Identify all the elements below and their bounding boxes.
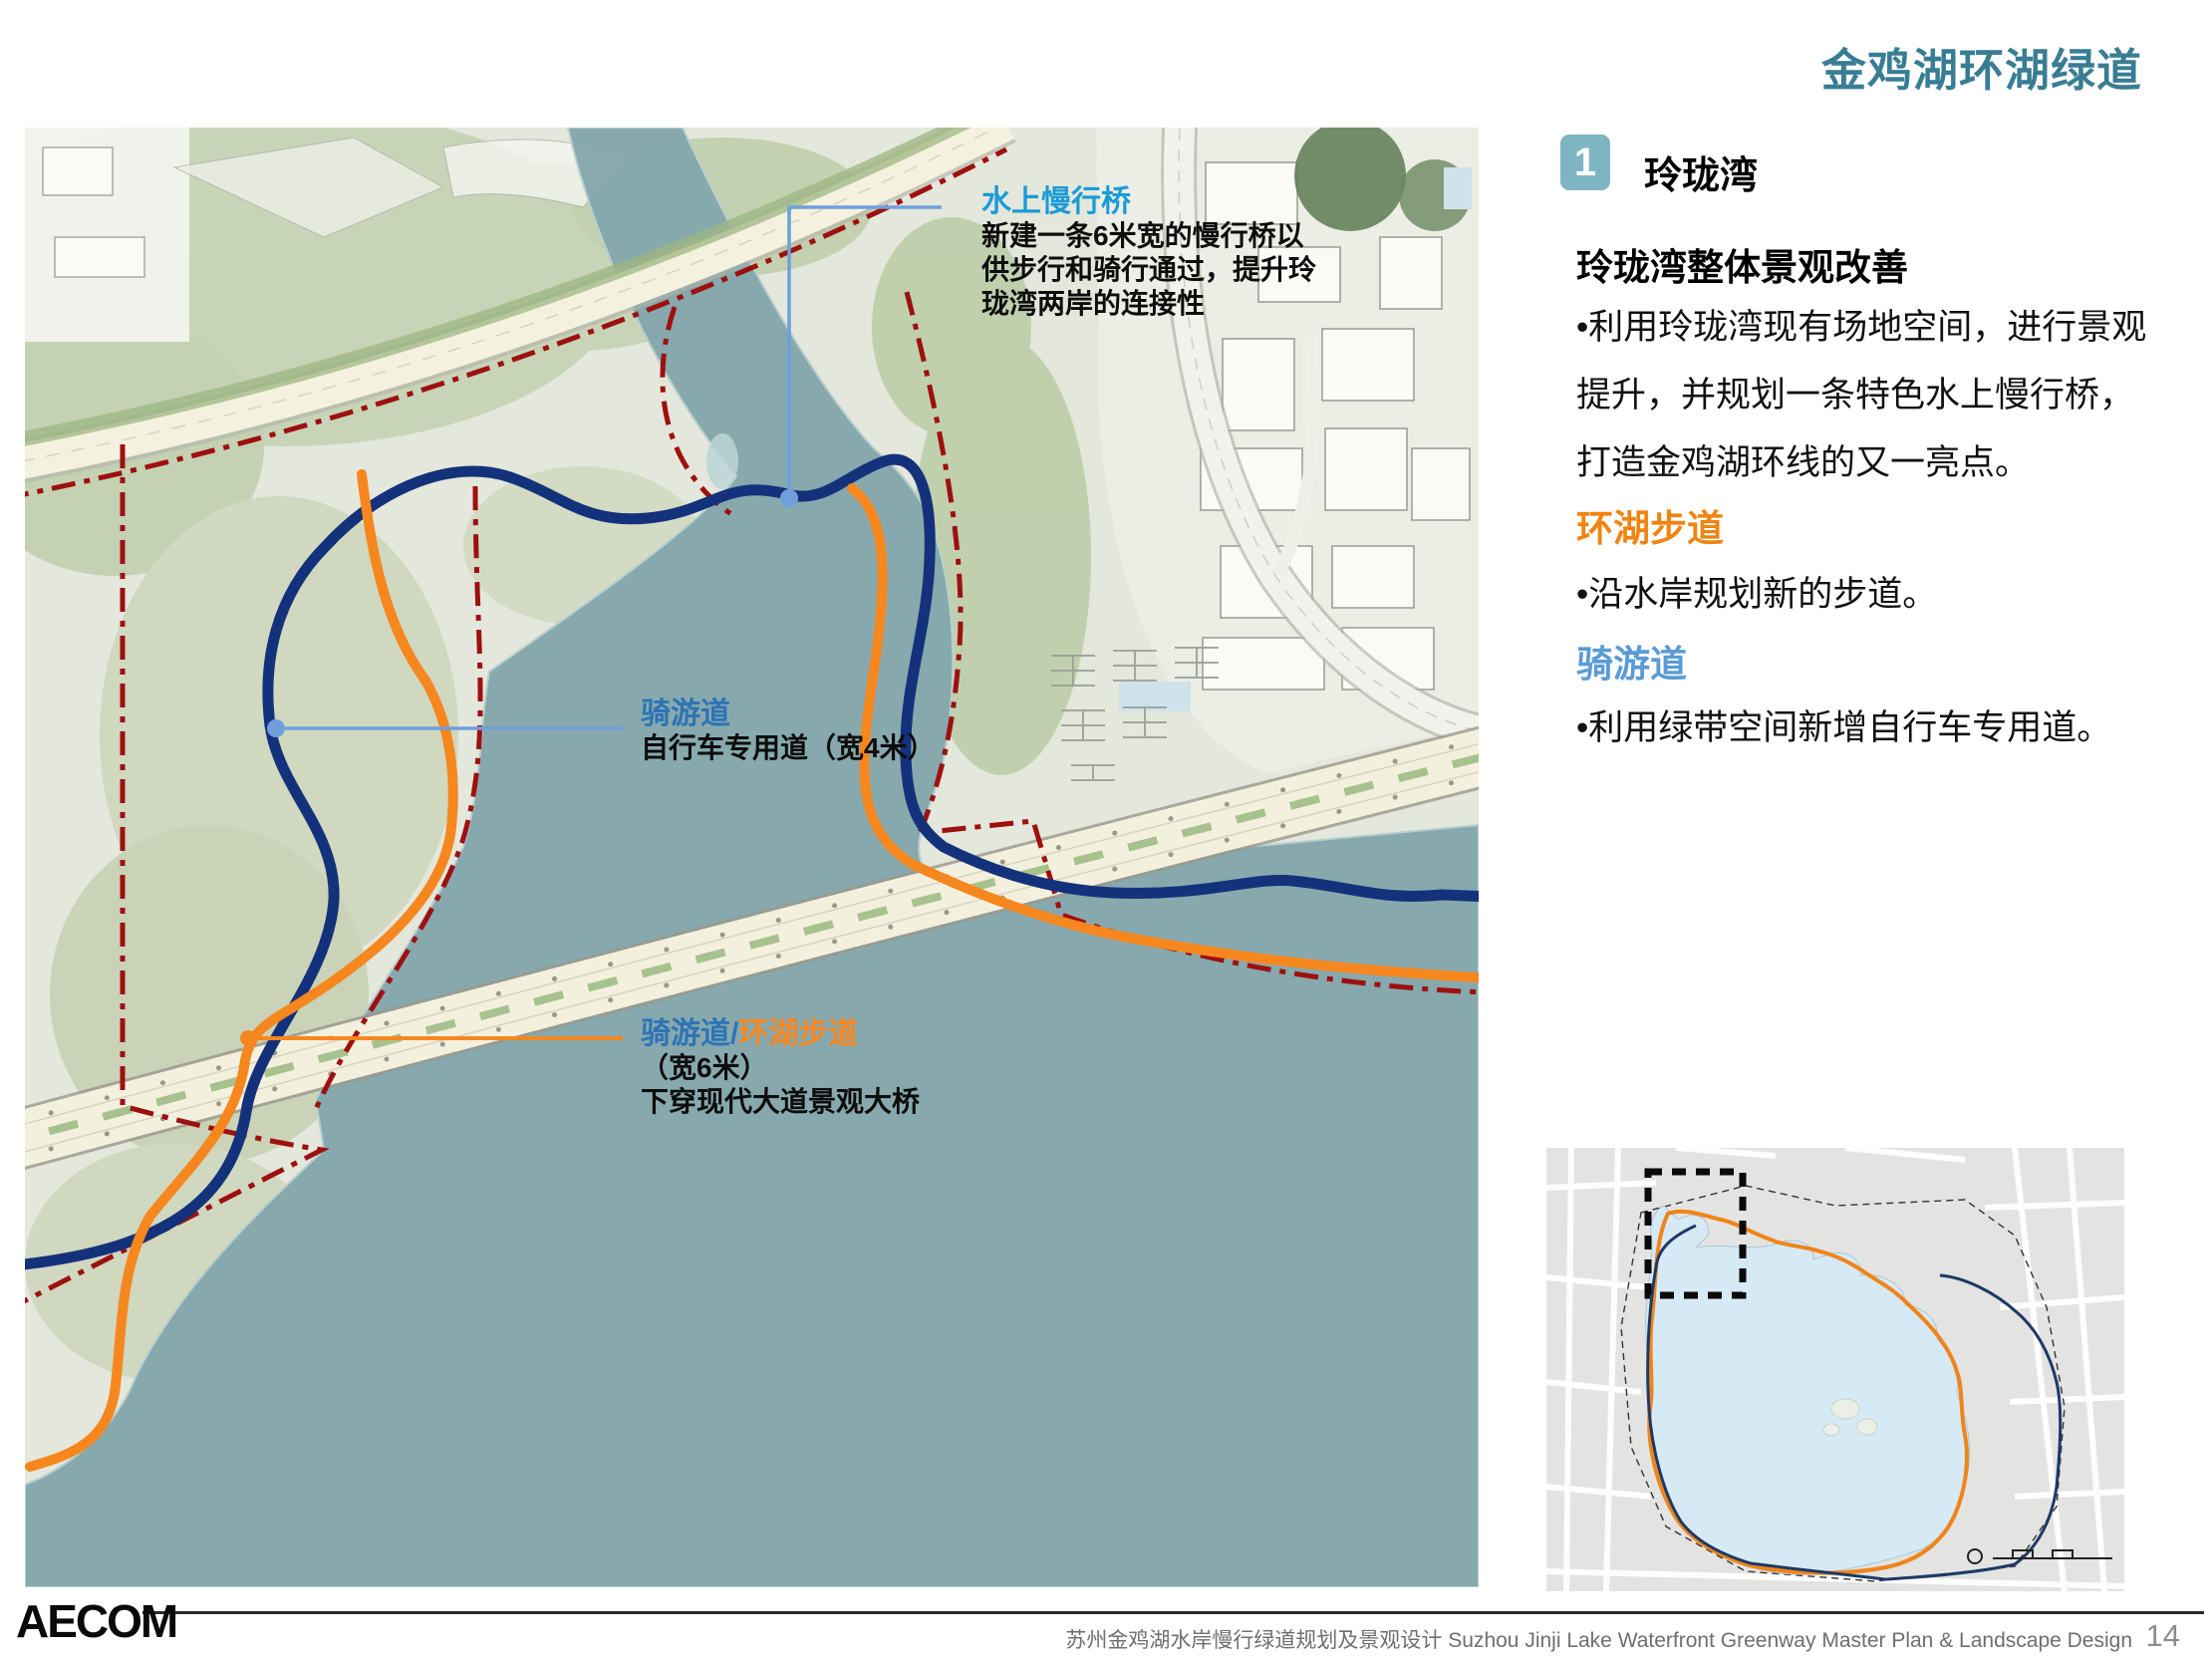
section-subheading: 玲珑湾整体景观改善	[1576, 237, 1908, 291]
annotation-combined-path-title: 骑游道/环湖步道	[641, 1017, 1109, 1051]
footer-caption: 苏州金鸡湖水岸慢行绿道规划及景观设计 Suzhou Jinji Lake Wat…	[1065, 1624, 2132, 1654]
callout-dot-combined-path	[240, 1030, 256, 1046]
lakeside-walkway-bullet: •沿水岸规划新的步道。	[1576, 566, 1937, 617]
locator-minimap	[1546, 1148, 2124, 1591]
aerial-plan-svg	[25, 128, 1479, 1587]
locator-minimap-svg	[1546, 1148, 2124, 1591]
section-paragraph-line3: 打造金鸡湖环线的又一亮点。	[1576, 434, 2212, 485]
annotation-water-bridge-line2: 供步行和骑行通过，提升玲	[981, 253, 1410, 287]
annotation-water-bridge: 水上慢行桥 新建一条6米宽的慢行桥以 供步行和骑行通过，提升玲 珑湾两岸的连接性	[981, 185, 1410, 321]
lakeside-walkway-heading: 环湖步道	[1576, 498, 1724, 552]
callout-dot-water-bridge	[780, 489, 798, 507]
page-title: 金鸡湖环湖绿道	[1821, 34, 2142, 99]
bike-route-bullet: •利用绿带空间新增自行车专用道。	[1576, 699, 2111, 750]
callout-dot-bike-path	[267, 719, 285, 737]
annotation-combined-line1: （宽6米）	[641, 1051, 1109, 1085]
section-paragraph-line1: •利用玲珑湾现有场地空间，进行景观	[1576, 299, 2212, 350]
annotation-combined-path: 骑游道/环湖步道 （宽6米） 下穿现代大道景观大桥	[641, 1017, 1109, 1119]
annotation-water-bridge-title: 水上慢行桥	[981, 185, 1410, 219]
footer-divider	[142, 1611, 2204, 1614]
combined-title-orange: 环湖步道	[738, 1017, 858, 1050]
section-paragraph-line2: 提升，并规划一条特色水上慢行桥，	[1576, 367, 2212, 417]
annotation-bike-path-title: 骑游道	[641, 697, 1099, 731]
annotation-water-bridge-line3: 珑湾两岸的连接性	[981, 287, 1410, 321]
slide-page: 金鸡湖环湖绿道	[0, 0, 2212, 1659]
aecom-logo: AECOM	[16, 1594, 176, 1648]
page-number: 14	[2146, 1618, 2180, 1654]
bike-route-heading: 骑游道	[1576, 634, 1687, 688]
water-highlight	[706, 433, 738, 489]
combined-title-blue: 骑游道	[641, 1017, 730, 1050]
annotation-bike-path-desc: 自行车专用道（宽4米）	[641, 731, 1099, 765]
section-number-badge: 1	[1560, 135, 1610, 190]
annotation-combined-line2: 下穿现代大道景观大桥	[641, 1085, 1109, 1119]
section-heading: 玲珑湾	[1644, 144, 1758, 199]
annotation-bike-path: 骑游道 自行车专用道（宽4米）	[641, 697, 1099, 765]
annotation-water-bridge-line1: 新建一条6米宽的慢行桥以	[981, 219, 1410, 253]
main-plan-map: 水上慢行桥 新建一条6米宽的慢行桥以 供步行和骑行通过，提升玲 珑湾两岸的连接性…	[25, 128, 1479, 1587]
